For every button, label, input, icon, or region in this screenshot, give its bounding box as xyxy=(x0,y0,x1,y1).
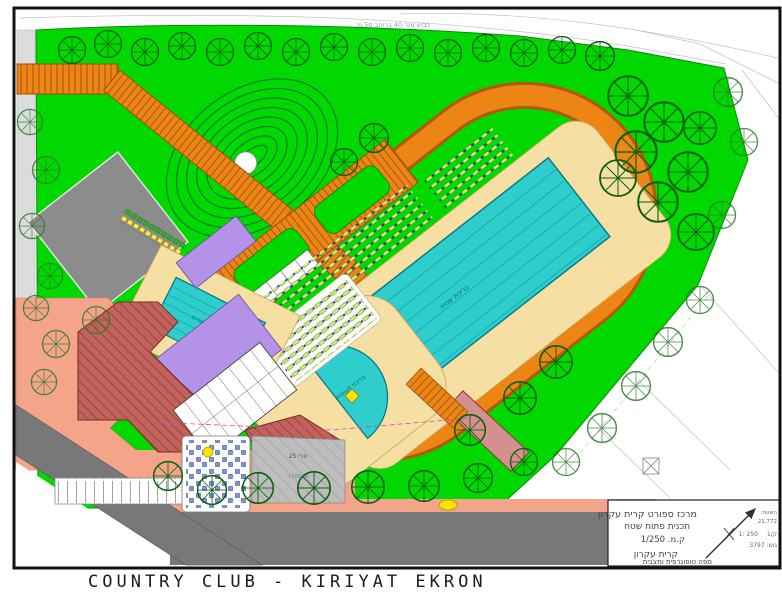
tree-icon xyxy=(95,31,122,58)
site-plan-page: בריכת שחיה בריכת פעוטות בריכה לימודית xyxy=(0,0,782,600)
drawing-caption: COUNTRY CLUB - KIRIYAT EKRON xyxy=(88,572,688,592)
tree-icon xyxy=(154,462,183,491)
site-plan-svg: בריכת שחיה בריכת פעוטות בריכה לימודית xyxy=(0,0,782,600)
tree-icon xyxy=(586,42,615,71)
title-area-value: 21,772 xyxy=(758,519,777,525)
tree-icon xyxy=(298,472,330,504)
tree-icon xyxy=(588,414,617,443)
road-label: כביש מס' 40 ברוחב 50 מ' xyxy=(356,21,431,29)
tree-icon xyxy=(553,449,580,476)
tree-icon xyxy=(321,34,348,61)
tree-icon xyxy=(59,37,86,64)
title-map-type: מפה טופוגרפית ומצבית xyxy=(643,558,713,566)
car-icon xyxy=(439,500,457,510)
tree-icon xyxy=(464,464,493,493)
tree-icon xyxy=(638,182,678,222)
tree-icon xyxy=(397,35,424,62)
title-scale-small: 1: 250 xyxy=(739,531,758,538)
tree-icon xyxy=(331,149,358,176)
tree-icon xyxy=(198,476,227,505)
tree-icon xyxy=(19,213,44,238)
tree-icon xyxy=(245,33,272,60)
tree-icon xyxy=(435,40,462,67)
tree-icon xyxy=(17,109,42,134)
tree-icon xyxy=(608,76,648,116)
tree-icon xyxy=(169,33,196,60)
tree-icon xyxy=(615,131,656,172)
title-project-line1: מרכז ספורט קרית עקרון xyxy=(598,509,697,520)
tree-icon xyxy=(31,369,56,394)
tree-icon xyxy=(360,124,389,153)
tree-icon xyxy=(243,473,274,504)
tree-icon xyxy=(359,39,386,66)
title-sheet: ק/1 xyxy=(767,531,777,538)
tree-icon xyxy=(684,112,716,144)
tree-icon xyxy=(504,382,536,414)
tree-icon xyxy=(622,372,651,401)
tree-icon xyxy=(409,471,440,502)
title-area-label: השטח: xyxy=(760,510,777,516)
tree-icon xyxy=(352,471,384,503)
tree-icon xyxy=(455,415,486,446)
tree-icon xyxy=(511,449,538,476)
tree-icon xyxy=(23,295,48,320)
umbrella-icon xyxy=(203,447,213,457)
title-block-parcel: גוש: 3797 xyxy=(749,542,777,549)
tree-icon xyxy=(37,263,62,288)
tree-icon xyxy=(668,152,708,192)
tree-icon xyxy=(549,37,576,64)
tree-icon xyxy=(687,287,714,314)
parking-stall-ticks xyxy=(55,478,185,504)
tree-icon xyxy=(132,39,159,66)
parking-label: חני' 25 xyxy=(289,453,308,460)
tree-icon xyxy=(207,39,234,66)
tree-icon xyxy=(654,328,683,357)
tree-icon xyxy=(709,202,736,229)
tree-icon xyxy=(600,160,636,196)
title-block: מרכז ספורט קרית עקרון תכנית פתוח שטח ק.מ… xyxy=(598,500,780,566)
tree-icon xyxy=(714,78,743,107)
tree-icon xyxy=(83,307,110,334)
tree-icon xyxy=(511,40,538,67)
title-scale-line: ק.מ. 1/250 xyxy=(641,535,685,545)
tree-icon xyxy=(540,346,572,378)
tree-icon xyxy=(43,331,70,358)
tree-icon xyxy=(473,35,500,62)
terrace xyxy=(182,436,250,512)
tree-icon xyxy=(731,129,758,156)
tree-icon xyxy=(283,39,310,66)
tree-icon xyxy=(33,157,60,184)
title-project-line2: תכנית פתוח שטח xyxy=(624,522,690,532)
